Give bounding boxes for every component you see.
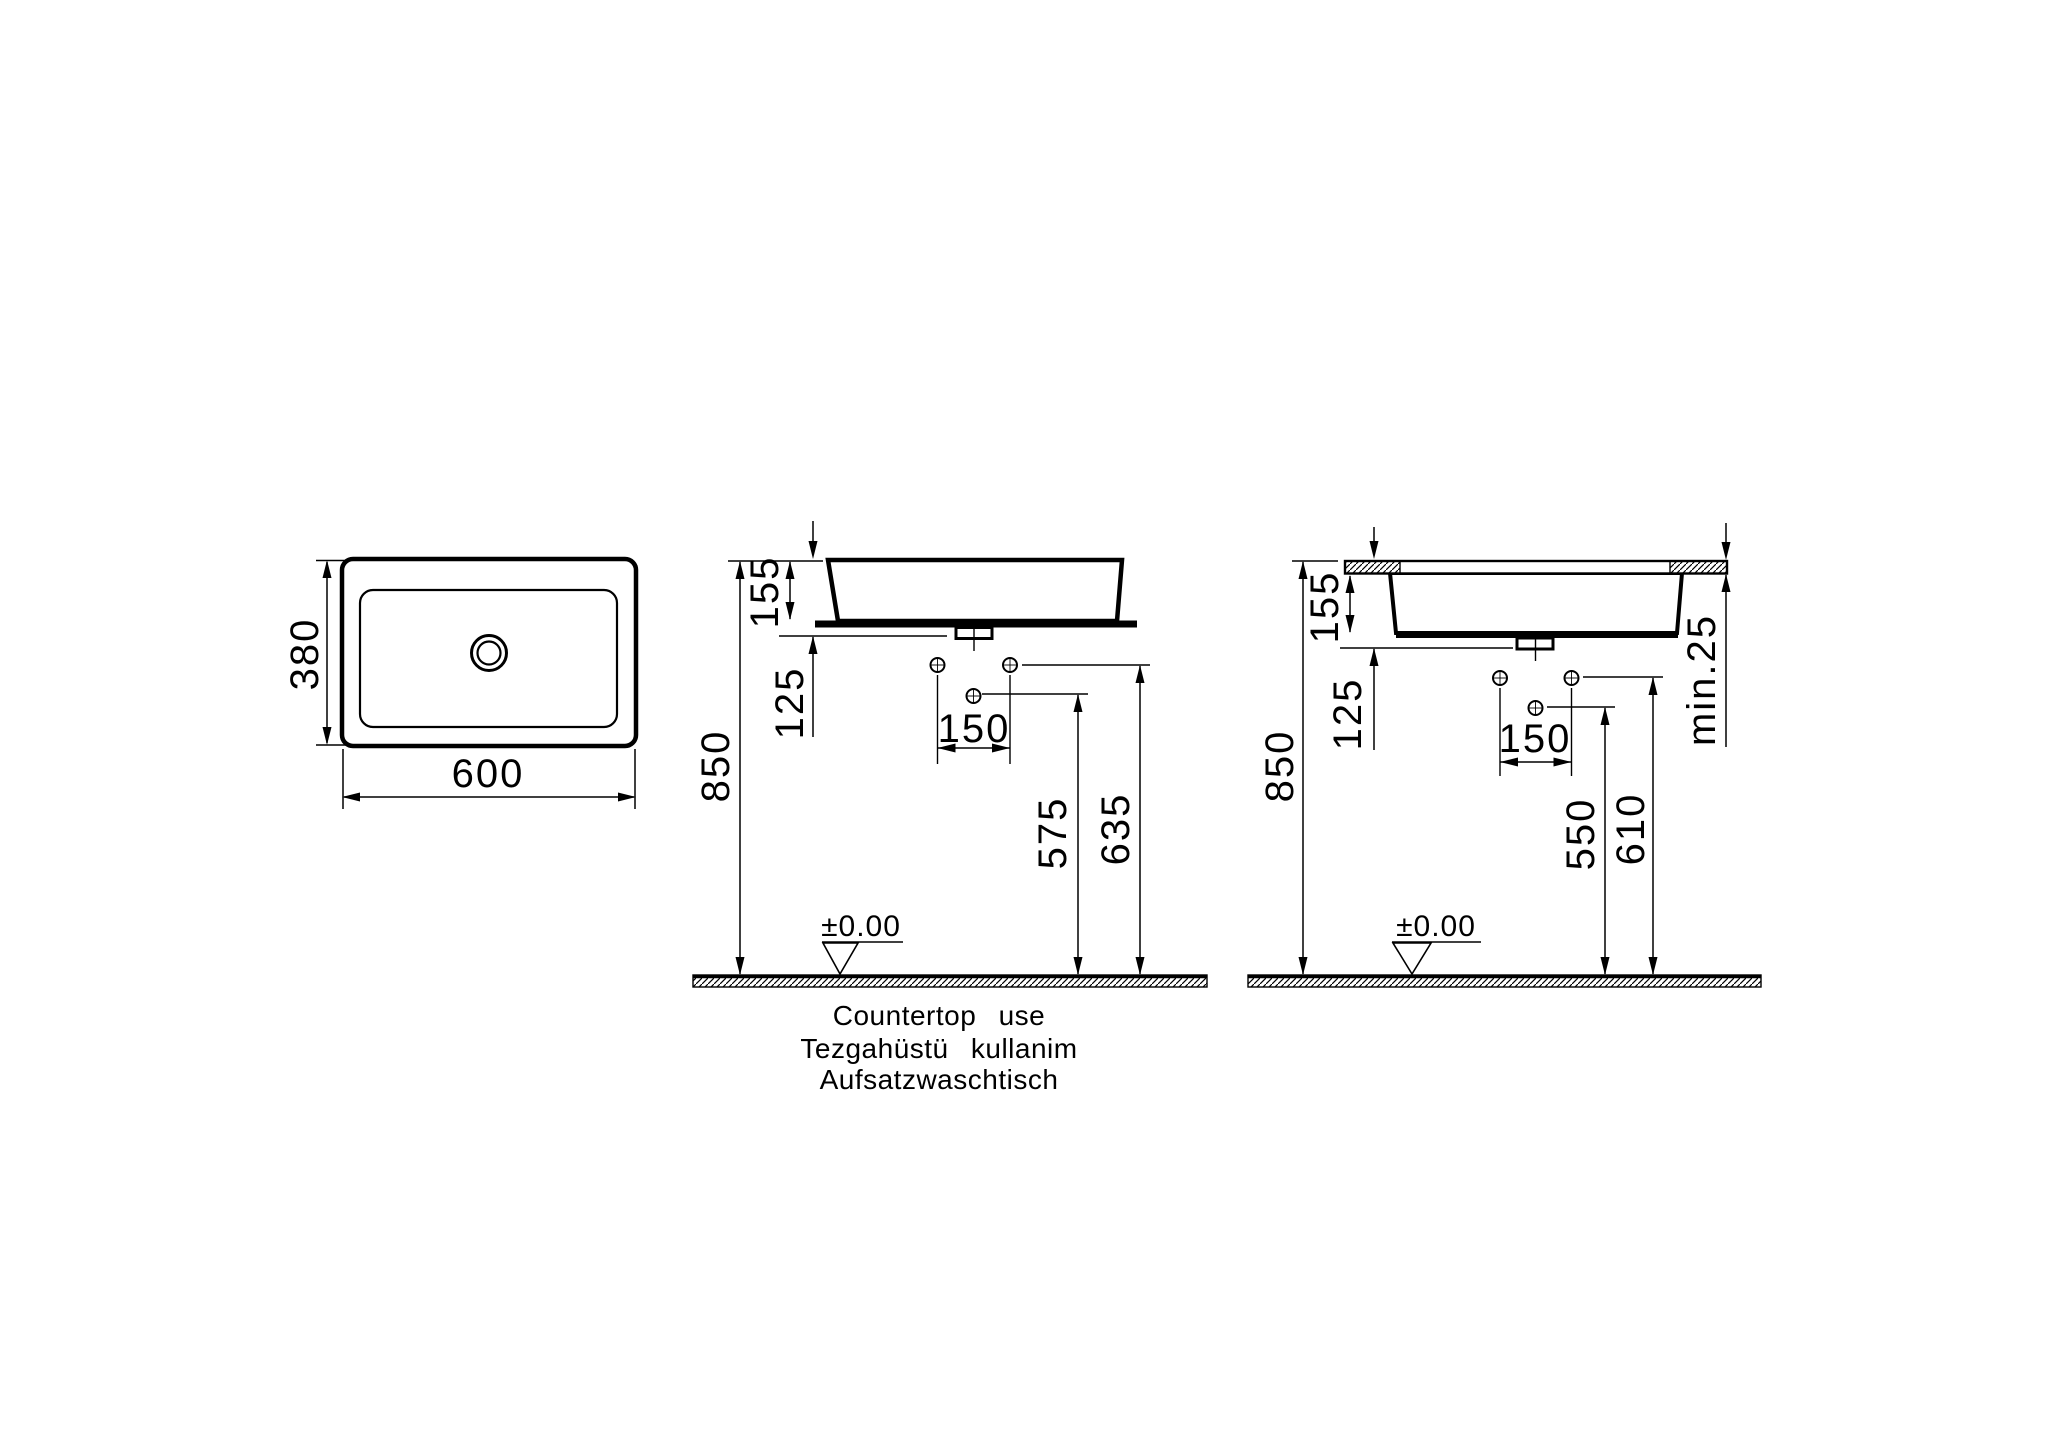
counter-cut-right <box>1670 562 1726 573</box>
ct-hole-spacing-label: 150 <box>938 709 1011 749</box>
ct-upper-hole-label: 635 <box>1096 793 1136 866</box>
caption-line-tr: Tezgahüstü kullanim <box>800 1035 1077 1063</box>
ct-hole-drop-label: 125 <box>770 667 810 740</box>
dim-width-label: 600 <box>452 754 525 794</box>
basin-side-profile <box>1390 573 1682 633</box>
rc-counter-height-label: 850 <box>1260 730 1300 803</box>
ct-counter-height-label: 850 <box>696 730 736 803</box>
caption-line-de: Aufsatzwaschtisch <box>820 1066 1059 1094</box>
rc-basin-height-label: 155 <box>1305 571 1345 644</box>
rc-hole-drop-label: 125 <box>1328 678 1368 751</box>
drawing-sheet: 380 600 155 125 850 150 575 635 ±0.00 15… <box>0 0 2048 1449</box>
basin-side-profile <box>828 560 1122 621</box>
rc-datum-label: ±0.00 <box>1396 912 1476 942</box>
rc-hole-spacing-label: 150 <box>1499 719 1572 759</box>
ct-datum-label: ±0.00 <box>821 912 901 942</box>
counter-cut-left <box>1346 562 1400 573</box>
datum-triangle-icon <box>1393 943 1431 974</box>
datum-triangle-icon <box>823 943 858 974</box>
dim-depth-label: 380 <box>285 618 325 691</box>
drawing-linework <box>0 0 2048 1449</box>
ct-lower-hole-label: 575 <box>1033 797 1073 870</box>
rc-upper-hole-label: 610 <box>1611 793 1651 866</box>
basin-inner-bowl <box>360 590 617 727</box>
rc-min-thickness-label: min.25 <box>1682 614 1722 746</box>
rc-lower-hole-label: 550 <box>1561 798 1601 871</box>
ct-basin-height-label: 155 <box>745 556 785 629</box>
caption-line-en: Countertop use <box>833 1002 1045 1030</box>
